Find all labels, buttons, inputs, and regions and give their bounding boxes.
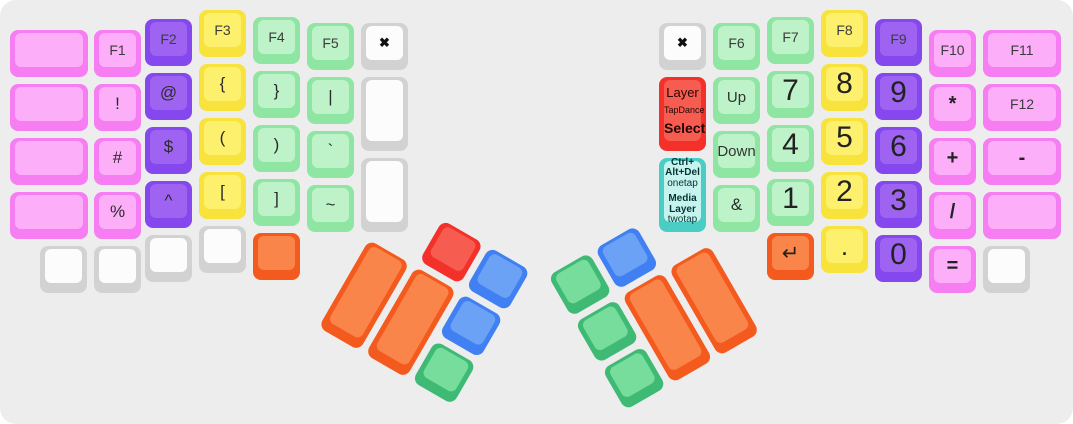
key-f8-label: F8 bbox=[836, 22, 852, 38]
key-minus-label: - bbox=[1019, 147, 1026, 170]
key-num-4-face: 4 bbox=[772, 128, 809, 162]
key-up-face: Up bbox=[718, 80, 755, 114]
key-f3[interactable]: F3 bbox=[199, 10, 246, 57]
key-at-face: @ bbox=[150, 76, 187, 110]
key-exclam-label: ! bbox=[115, 94, 120, 114]
key-num-2[interactable]: 2 bbox=[821, 172, 868, 219]
key-f4[interactable]: F4 bbox=[253, 17, 300, 64]
key-num-5[interactable]: 5 bbox=[821, 118, 868, 165]
key-f7-label: F7 bbox=[782, 29, 798, 45]
key-left-outer-r0-face bbox=[15, 33, 83, 67]
key-f10[interactable]: F10 bbox=[929, 30, 976, 77]
key-rbrace-label: } bbox=[274, 81, 280, 101]
key-lparen-face: ( bbox=[204, 121, 241, 155]
key-num-1-face: 1 bbox=[772, 182, 809, 216]
key-asterisk-face: * bbox=[934, 87, 971, 121]
key-ctrl-alt-del-media-layer-line-2: onetap bbox=[664, 179, 701, 190]
key-f1[interactable]: F1 bbox=[94, 30, 141, 77]
key-asterisk[interactable]: * bbox=[929, 84, 976, 131]
key-left-bottom-orange-face bbox=[258, 236, 295, 270]
key-dollar[interactable]: $ bbox=[145, 127, 192, 174]
thumb-right-green-mid-face bbox=[581, 304, 630, 352]
thumb-left-green-face bbox=[421, 346, 470, 394]
key-tilde-face: ~ bbox=[312, 188, 349, 222]
key-down[interactable]: Down bbox=[713, 131, 760, 178]
key-f2-face: F2 bbox=[150, 22, 187, 56]
key-right-bottom-white-face bbox=[988, 249, 1025, 283]
key-at-label: @ bbox=[160, 83, 177, 103]
key-f12-face: F12 bbox=[988, 87, 1056, 121]
key-f6-label: F6 bbox=[728, 35, 744, 51]
key-rbracket[interactable]: ] bbox=[253, 179, 300, 226]
key-lbrace-label: { bbox=[220, 74, 226, 94]
key-exclam-face: ! bbox=[99, 87, 136, 121]
key-num-4-label: 4 bbox=[782, 128, 799, 162]
key-left-bottom-3[interactable] bbox=[145, 235, 192, 282]
key-num-6-label: 6 bbox=[890, 130, 907, 164]
key-asterisk-label: * bbox=[949, 93, 957, 116]
key-f11-label: F11 bbox=[1010, 42, 1033, 58]
key-f4-label: F4 bbox=[268, 29, 284, 45]
key-plus-label: + bbox=[947, 147, 959, 170]
key-left-bottom-2-face bbox=[99, 249, 136, 283]
key-num-1[interactable]: 1 bbox=[767, 179, 814, 226]
key-tilde[interactable]: ~ bbox=[307, 185, 354, 232]
key-right-outer-blank[interactable] bbox=[983, 192, 1061, 239]
key-left-bottom-4[interactable] bbox=[199, 226, 246, 273]
key-layer-tapdance-select[interactable]: LayerTapDanceSelect bbox=[659, 77, 706, 151]
key-left-cancel-face: ✖ bbox=[366, 26, 403, 60]
key-hash-label: # bbox=[113, 148, 122, 168]
thumb-right-green-bottom-face bbox=[608, 351, 657, 399]
key-lbrace-face: { bbox=[204, 67, 241, 101]
key-hash[interactable]: # bbox=[94, 138, 141, 185]
key-f11[interactable]: F11 bbox=[983, 30, 1061, 77]
key-f6-face: F6 bbox=[718, 26, 755, 60]
key-num-0-face: 0 bbox=[880, 238, 917, 272]
key-f12[interactable]: F12 bbox=[983, 84, 1061, 131]
keyboard-canvas: F1!#%F2@$^F3{([F4})]F5|`~✖✖LayerTapDance… bbox=[0, 0, 1073, 424]
key-f8-face: F8 bbox=[826, 13, 863, 47]
key-slash-label: / bbox=[950, 201, 956, 224]
key-right-cancel[interactable]: ✖ bbox=[659, 23, 706, 70]
key-percent[interactable]: % bbox=[94, 192, 141, 239]
key-num-9-face: 9 bbox=[880, 76, 917, 110]
key-f3-face: F3 bbox=[204, 13, 241, 47]
key-left-cancel[interactable]: ✖ bbox=[361, 23, 408, 70]
key-rparen-face: ) bbox=[258, 128, 295, 162]
key-down-face: Down bbox=[718, 134, 755, 168]
key-left-bottom-2[interactable] bbox=[94, 246, 141, 293]
key-pipe[interactable]: | bbox=[307, 77, 354, 124]
key-dollar-label: $ bbox=[164, 137, 173, 157]
key-num-2-face: 2 bbox=[826, 175, 863, 209]
key-percent-label: % bbox=[110, 202, 125, 222]
key-ampersand-label: & bbox=[731, 195, 742, 215]
key-backtick-face: ` bbox=[312, 134, 349, 168]
key-f2[interactable]: F2 bbox=[145, 19, 192, 66]
key-num-5-label: 5 bbox=[836, 121, 853, 155]
key-period[interactable]: . bbox=[821, 226, 868, 273]
key-layer-tapdance-select-line-0: Layer bbox=[664, 85, 701, 100]
key-period-face: . bbox=[826, 229, 863, 263]
key-f1-face: F1 bbox=[99, 33, 136, 67]
key-left-bottom-4-face bbox=[204, 229, 241, 263]
key-num-8-face: 8 bbox=[826, 67, 863, 101]
key-num-3-label: 3 bbox=[890, 184, 907, 218]
key-lbracket[interactable]: [ bbox=[199, 172, 246, 219]
key-rbrace-face: } bbox=[258, 74, 295, 108]
key-dollar-face: $ bbox=[150, 130, 187, 164]
key-down-label: Down bbox=[717, 143, 755, 160]
key-f5-face: F5 bbox=[312, 26, 349, 60]
key-left-outer-r1[interactable] bbox=[10, 84, 88, 131]
key-layer-tapdance-select-line-1: TapDance bbox=[664, 105, 701, 115]
key-left-bottom-orange[interactable] bbox=[253, 233, 300, 280]
key-minus[interactable]: - bbox=[983, 138, 1061, 185]
key-f12-label: F12 bbox=[1010, 96, 1034, 112]
key-up[interactable]: Up bbox=[713, 77, 760, 124]
key-lparen[interactable]: ( bbox=[199, 118, 246, 165]
key-enter-label: ↵ bbox=[782, 241, 800, 266]
key-lbracket-label: [ bbox=[220, 182, 225, 202]
key-f11-face: F11 bbox=[988, 33, 1056, 67]
key-num-6[interactable]: 6 bbox=[875, 127, 922, 174]
key-caret[interactable]: ^ bbox=[145, 181, 192, 228]
key-f3-label: F3 bbox=[214, 22, 230, 38]
key-f5-label: F5 bbox=[322, 35, 338, 51]
key-left-outer-r2-face bbox=[15, 141, 83, 175]
key-num-6-face: 6 bbox=[880, 130, 917, 164]
key-f1-label: F1 bbox=[109, 42, 125, 58]
key-num-0-label: 0 bbox=[890, 238, 907, 272]
key-left-outer-r0[interactable] bbox=[10, 30, 88, 77]
key-f8[interactable]: F8 bbox=[821, 10, 868, 57]
key-num-7-face: 7 bbox=[772, 74, 809, 108]
key-f4-face: F4 bbox=[258, 20, 295, 54]
key-left-bottom-3-face bbox=[150, 238, 187, 272]
key-num-2-label: 2 bbox=[836, 175, 853, 209]
key-right-cancel-face: ✖ bbox=[664, 26, 701, 60]
key-exclam[interactable]: ! bbox=[94, 84, 141, 131]
key-hash-face: # bbox=[99, 141, 136, 175]
key-pipe-face: | bbox=[312, 80, 349, 114]
key-left-outer-r2[interactable] bbox=[10, 138, 88, 185]
key-f9[interactable]: F9 bbox=[875, 19, 922, 66]
key-slash[interactable]: / bbox=[929, 192, 976, 239]
key-equals-label: = bbox=[947, 255, 959, 278]
key-num-4[interactable]: 4 bbox=[767, 125, 814, 172]
key-num-9[interactable]: 9 bbox=[875, 73, 922, 120]
key-lbracket-face: [ bbox=[204, 175, 241, 209]
key-num-3[interactable]: 3 bbox=[875, 181, 922, 228]
key-left-outer-r3-face bbox=[15, 195, 83, 229]
key-f9-label: F9 bbox=[890, 31, 906, 47]
key-equals[interactable]: = bbox=[929, 246, 976, 293]
key-left-bottom-1[interactable] bbox=[40, 246, 87, 293]
key-f7[interactable]: F7 bbox=[767, 17, 814, 64]
key-f9-face: F9 bbox=[880, 22, 917, 56]
key-minus-face: - bbox=[988, 141, 1056, 175]
key-num-1-label: 1 bbox=[782, 182, 799, 216]
key-up-label: Up bbox=[727, 89, 746, 106]
key-right-cancel-label: ✖ bbox=[677, 35, 688, 51]
key-layer-tapdance-select-line-2: Select bbox=[664, 120, 701, 136]
key-enter-face: ↵ bbox=[772, 236, 809, 270]
key-percent-face: % bbox=[99, 195, 136, 229]
thumb-left-blue-mid-face bbox=[448, 299, 497, 347]
key-ctrl-alt-del-media-layer-line-1: Alt+Del bbox=[664, 168, 701, 179]
key-left-outer-r3[interactable] bbox=[10, 192, 88, 239]
key-slash-face: / bbox=[934, 195, 971, 229]
key-f7-face: F7 bbox=[772, 20, 809, 54]
key-pipe-label: | bbox=[328, 87, 332, 107]
key-f10-face: F10 bbox=[934, 33, 971, 67]
key-right-outer-blank-face bbox=[988, 195, 1056, 229]
key-num-0[interactable]: 0 bbox=[875, 235, 922, 282]
key-left-inner-tall-1-face bbox=[366, 80, 403, 141]
key-plus[interactable]: + bbox=[929, 138, 976, 185]
key-right-bottom-white[interactable] bbox=[983, 246, 1030, 293]
key-backtick-label: ` bbox=[328, 141, 334, 161]
key-ampersand-face: & bbox=[718, 188, 755, 222]
key-left-cancel-label: ✖ bbox=[379, 35, 390, 51]
key-backtick[interactable]: ` bbox=[307, 131, 354, 178]
key-num-9-label: 9 bbox=[890, 76, 907, 110]
key-lbrace[interactable]: { bbox=[199, 64, 246, 111]
key-f2-label: F2 bbox=[160, 31, 176, 47]
key-num-3-face: 3 bbox=[880, 184, 917, 218]
key-ampersand[interactable]: & bbox=[713, 185, 760, 232]
key-enter[interactable]: ↵ bbox=[767, 233, 814, 280]
key-rbracket-face: ] bbox=[258, 182, 295, 216]
key-rbracket-label: ] bbox=[274, 189, 279, 209]
key-lparen-label: ( bbox=[220, 128, 226, 148]
key-plus-face: + bbox=[934, 141, 971, 175]
key-num-7-label: 7 bbox=[782, 74, 799, 108]
key-num-7[interactable]: 7 bbox=[767, 71, 814, 118]
key-equals-face: = bbox=[934, 249, 971, 283]
key-caret-face: ^ bbox=[150, 184, 187, 218]
key-rparen[interactable]: ) bbox=[253, 125, 300, 172]
key-left-bottom-1-face bbox=[45, 249, 82, 283]
key-layer-tapdance-select-face: LayerTapDanceSelect bbox=[664, 80, 701, 141]
main-key-area: F1!#%F2@$^F3{([F4})]F5|`~✖✖LayerTapDance… bbox=[0, 0, 1073, 424]
key-f10-label: F10 bbox=[940, 42, 964, 58]
key-at[interactable]: @ bbox=[145, 73, 192, 120]
key-num-5-face: 5 bbox=[826, 121, 863, 155]
key-num-8-label: 8 bbox=[836, 67, 853, 101]
key-tilde-label: ~ bbox=[326, 195, 336, 215]
key-num-8[interactable]: 8 bbox=[821, 64, 868, 111]
key-caret-label: ^ bbox=[165, 191, 173, 211]
key-left-inner-tall-1[interactable] bbox=[361, 77, 408, 151]
key-f6[interactable]: F6 bbox=[713, 23, 760, 70]
key-left-outer-r1-face bbox=[15, 87, 83, 121]
key-rbrace[interactable]: } bbox=[253, 71, 300, 118]
key-rparen-label: ) bbox=[274, 135, 280, 155]
key-f5[interactable]: F5 bbox=[307, 23, 354, 70]
